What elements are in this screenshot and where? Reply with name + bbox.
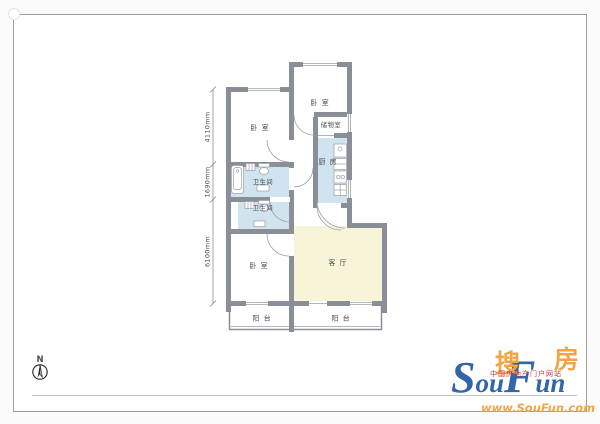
kitchen-sink-icon [334, 144, 347, 157]
room-label-kitchen: 厨 房 [318, 157, 337, 166]
room-label-bedroom-top-left: 卧 室 [250, 123, 269, 132]
sink-icon [246, 164, 255, 171]
room-label-storage: 储物室 [321, 120, 341, 129]
logo-letter-s: S [451, 353, 475, 402]
soufun-logo: SouFun 搜 房 中国房地产门户网站 www.SouFun.com [448, 342, 596, 418]
room-label-bathroom-lower: 卫生间 [253, 203, 273, 212]
room-label-bedroom-top-right: 卧 室 [310, 98, 329, 107]
compass-icon: N [33, 355, 47, 379]
cabinet-icon [254, 221, 265, 227]
page: 卧 室 卧 室 储物室 厨 房 卫生间 卫生间 卧 室 客 厅 阳 台 阳 台 … [0, 0, 600, 424]
dimension-upper: 4110mm [204, 111, 212, 142]
dimension-labels: 4110mm 1690mm 6100mm [204, 111, 212, 267]
room-label-bedroom-lower: 卧 室 [249, 261, 268, 270]
compass-label: N [36, 355, 43, 365]
logo-tagline: 中国房地产门户网站 [490, 369, 562, 379]
logo-website-url: www.SouFun.com [481, 401, 595, 415]
room-label-balcony-right: 阳 台 [331, 314, 350, 323]
dimension-lower: 6100mm [204, 236, 212, 267]
toilet-icon [259, 201, 270, 205]
dimension-middle: 1690mm [204, 166, 212, 197]
toilet-icon [259, 164, 270, 168]
room-label-living-room: 客 厅 [328, 258, 347, 267]
room-label-bathroom-upper: 卫生间 [253, 177, 273, 186]
room-label-balcony-left: 阳 台 [252, 314, 271, 323]
